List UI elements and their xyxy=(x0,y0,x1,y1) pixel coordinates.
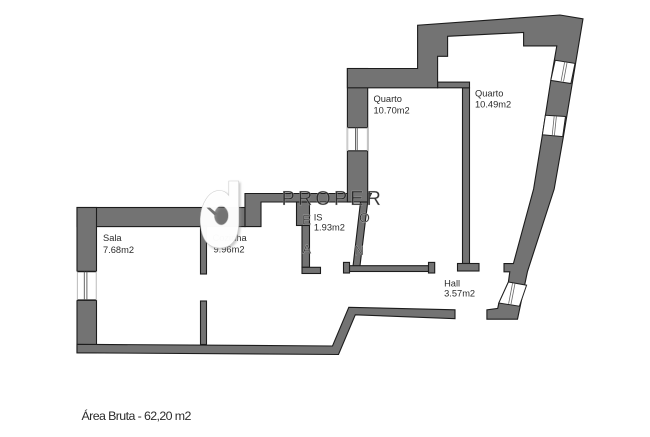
svg-text:3.57m2: 3.57m2 xyxy=(444,289,475,299)
svg-text:1.93m2: 1.93m2 xyxy=(314,223,345,233)
svg-text:10.70m2: 10.70m2 xyxy=(374,105,410,115)
svg-text:E: E xyxy=(302,211,311,227)
svg-text:A: A xyxy=(303,242,312,257)
svg-text:N: N xyxy=(355,243,364,258)
svg-text:PROPER: PROPER xyxy=(282,188,384,210)
svg-text:Quarto: Quarto xyxy=(475,88,503,98)
svg-text:Sala: Sala xyxy=(103,233,122,243)
svg-text:Quarto: Quarto xyxy=(374,94,402,104)
svg-text:Área Bruta - 62,20 m2: Área Bruta - 62,20 m2 xyxy=(82,408,192,423)
svg-text:IS: IS xyxy=(314,213,323,223)
svg-text:O: O xyxy=(359,209,370,225)
svg-text:10.49m2: 10.49m2 xyxy=(475,100,511,110)
svg-text:Hall: Hall xyxy=(444,279,460,289)
svg-text:7.68m2: 7.68m2 xyxy=(103,245,134,255)
